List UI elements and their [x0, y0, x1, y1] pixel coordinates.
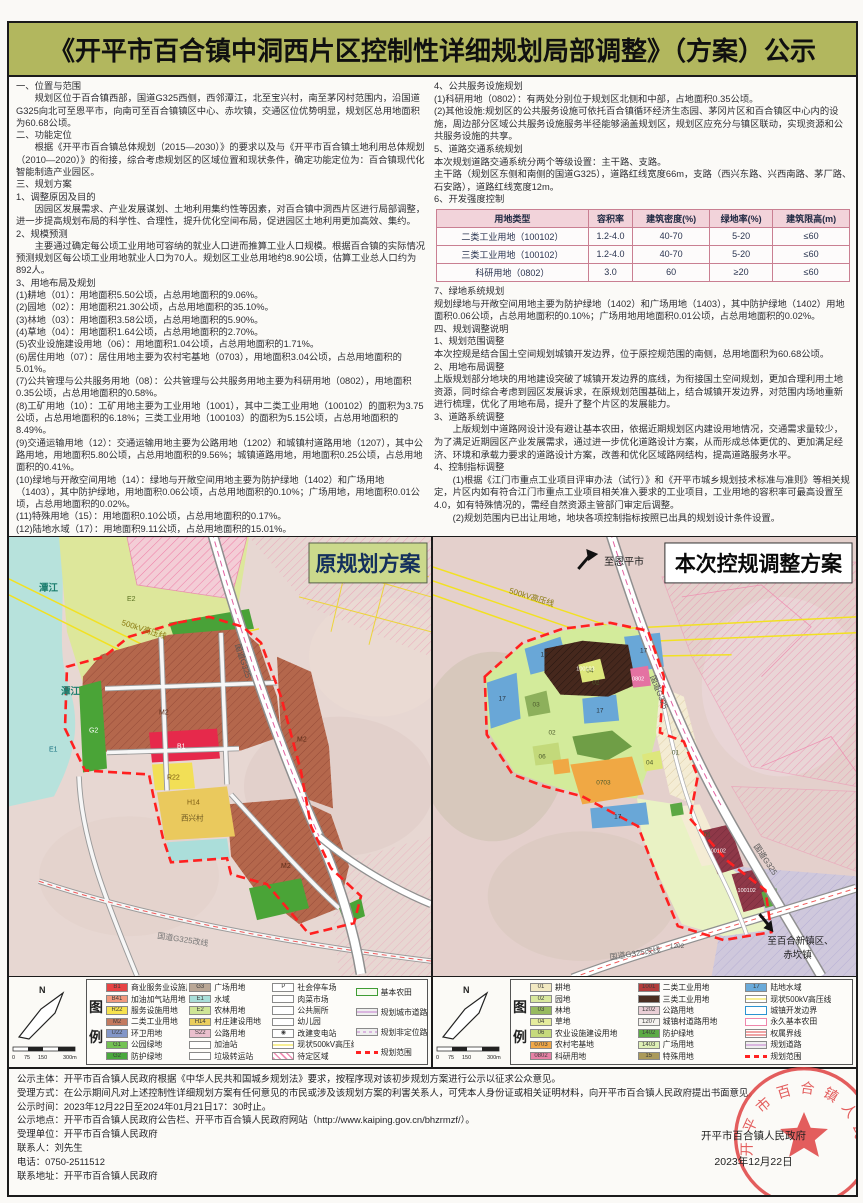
table-header-cell: 绿地率(%): [709, 209, 772, 227]
signature-block: 开平市百合镇人民政府 2023年12月22日: [701, 1123, 806, 1175]
parcel-code-e2: E2: [127, 596, 136, 603]
legend-item: 17 陆地水域: [745, 982, 851, 993]
legend-label: 幼儿园: [297, 1016, 320, 1027]
legend-item: 权属界线: [745, 1028, 851, 1039]
paragraph: (9)交通运输用地（12）：交通运输用地主要为公路用地（1202）和城镇村道路用…: [16, 437, 428, 474]
title-bar: 《开平市百合镇中洞西片区控制性详细规划局部调整》（方案）公示: [9, 23, 856, 77]
left-map-legend: N 0 75 150 300m 图例: [9, 977, 431, 1067]
legend-item: 03 林地: [530, 1005, 636, 1016]
parcel-code-b1: B1: [177, 744, 186, 751]
left-column: 一、位置与范围 规划区位于百合镇西部，国道G325西侧，西邻潭江，北至宝兴村，南…: [16, 80, 428, 534]
legend-item: 三类工业用地: [638, 994, 744, 1005]
notice-line: 受理方式：在公示期间凡对上述控制性详细规划方案有任何意见的市民或涉及该规划方案的…: [17, 1088, 848, 1098]
paragraph: 4、公共服务设施规划: [434, 80, 852, 93]
paragraph: 1、规划范围调整: [434, 335, 852, 348]
paragraph: (7)公共管理与公共服务用地（08）：公共管理与公共服务用地主要为科研用地（08…: [16, 375, 428, 400]
legend-label: 城镇村道路用地: [663, 1016, 718, 1027]
code-0703a: 0703: [596, 779, 611, 786]
cell-green-rate: 5-20: [709, 227, 772, 245]
text-columns: 一、位置与范围 规划区位于百合镇西部，国道G325西侧，西邻潭江，北至宝兴村，南…: [9, 77, 856, 536]
legend-item: 基本农田: [356, 987, 428, 998]
legend-item: 现状500kV高压线: [745, 994, 851, 1005]
svg-text:150: 150: [462, 1055, 471, 1061]
legend-swatch: 17: [745, 983, 767, 992]
legend-swatch: [356, 1028, 378, 1037]
legend-swatch: 1202: [638, 1006, 660, 1015]
legend-item: 1207 城镇村道路用地: [638, 1016, 744, 1027]
paragraph: (1)科研用地（0802）：有两处分别位于规划区北侧和中部，占地面积0.35公顷…: [434, 93, 852, 106]
legend-swatch: [272, 995, 294, 1004]
paragraph: (2)园地（02）：用地面积21.30公顷，占总用地面积的35.10%。: [16, 301, 428, 313]
paragraph: 本次规划道路交通系统分两个等级设置：主干路、支路。: [434, 156, 852, 169]
legend-item: 01 耕地: [530, 982, 636, 993]
code-100103: 100103: [576, 667, 594, 673]
cell-density: 60: [633, 263, 709, 281]
table-header-cell: 容积率: [588, 209, 633, 227]
left-north-scale: N 0 75 150 300m: [9, 977, 83, 1067]
cell-density: 40-70: [633, 227, 709, 245]
legend-label: 二类工业用地: [131, 1016, 178, 1027]
legend-item: 永久基本农田: [745, 1016, 851, 1027]
code-0802: 0802: [632, 677, 644, 683]
legend-swatch: E2: [189, 1006, 211, 1015]
legend-item: 06 农业设施建设用地: [530, 1028, 636, 1039]
legend-label: 现状500kV高压线: [297, 1039, 353, 1050]
legend-item: 肉菜市场: [272, 994, 353, 1005]
parcel-code-h14: H14: [187, 799, 200, 806]
legend-item: 加油站: [189, 1039, 270, 1050]
legend-swatch: B41: [106, 995, 128, 1004]
legend-swatch: G2: [106, 1052, 128, 1061]
notice-line: 公示时间：2023年12月22日至2024年01月21日17：30时止。: [17, 1102, 848, 1112]
paragraph: 2、用地布局调整: [434, 361, 852, 374]
legend-item: M2 二类工业用地: [106, 1016, 187, 1027]
right-column-top: 4、公共服务设施规划(1)科研用地（0802）：有两处分别位于规划区北侧和中部，…: [434, 80, 852, 206]
legend-label: 基本农田: [381, 987, 412, 998]
signature-date: 2023年12月22日: [701, 1149, 806, 1175]
code-17d: 17: [596, 708, 604, 715]
legend-item: G1 公园绿地: [106, 1039, 187, 1050]
paragraph: (5)农业设施建设用地（06）：用地面积1.04公顷，占总用地面积的1.71%。: [16, 338, 428, 350]
cell-land-type: 科研用地（0802）: [437, 263, 589, 281]
legend-swatch: H14: [189, 1018, 211, 1027]
legend-item: 城镇开发边界: [745, 1005, 851, 1016]
legend-swatch: 06: [530, 1029, 552, 1038]
legend-swatch: S22: [189, 1029, 211, 1038]
legend-label: 永久基本农田: [770, 1016, 817, 1027]
legend-swatch: ◉: [272, 1029, 294, 1038]
paragraph: 二、功能定位: [16, 129, 428, 141]
legend-caption-char: 例: [89, 1027, 103, 1047]
svg-text:150: 150: [38, 1055, 47, 1061]
right-map-legend: N 0 75 150 300m 图例: [431, 977, 856, 1067]
legend-swatch: 1403: [638, 1041, 660, 1050]
legend-item: B41 加油加气站用地: [106, 994, 187, 1005]
legend-label: 环卫用地: [131, 1028, 162, 1039]
legend-swatch: 03: [530, 1006, 552, 1015]
paragraph: 主干路（规划区东侧和南侧的国道G325），道路红线宽度66m，支路（西兴东路、兴…: [434, 168, 852, 193]
legend-item: 幼儿园: [272, 1016, 353, 1027]
legend-label: 林地: [555, 1005, 571, 1016]
scale-bar-labels: 0 75 150 300m: [436, 1055, 501, 1061]
paragraph: 3、道路系统调整: [434, 411, 852, 424]
legend-item: 1402 防护绿地: [638, 1028, 744, 1039]
paragraph: (12)陆地水域（17）：用地面积9.11公顷，占总用地面积的15.01%。: [16, 523, 428, 534]
paragraph: (10)绿地与开敞空间用地（14）：绿地与开敞空间用地主要为防护绿地（1402）…: [16, 474, 428, 511]
legend-label: 科研用地: [555, 1051, 586, 1062]
code-17e: 17: [614, 813, 622, 820]
code-17b: 17: [540, 652, 548, 659]
legend-item: 0802 科研用地: [530, 1051, 636, 1062]
legend-label: 防护绿地: [131, 1051, 162, 1062]
svg-text:75: 75: [448, 1055, 454, 1061]
paragraph: (8)工矿用地（10）：工矿用地主要为工业用地（1001），其中二类工业用地（1…: [16, 400, 428, 437]
legend-swatch: 04: [530, 1018, 552, 1027]
legend-label: 陆地水域: [770, 982, 801, 993]
legend-swatch: G1: [106, 1041, 128, 1050]
legend-swatch: M2: [106, 1018, 128, 1027]
legend-label: 垃圾转运站: [214, 1051, 253, 1062]
legend-item: G3 广场用地: [189, 982, 270, 993]
legend-label: 加油站: [214, 1039, 237, 1050]
map-section: 潭江 潭江 500kV高压线 国道G325 国道G325改线 西兴村 M2 M2…: [9, 536, 856, 976]
code-100102b: 100102: [738, 888, 756, 894]
right-legend-box: 图例 01 耕地 02 园地 03 林地: [510, 979, 853, 1065]
parcel-code-m2b: M2: [297, 737, 307, 744]
legend-item: P 社会停车场: [272, 982, 353, 993]
north-arrow-icon: [19, 993, 63, 1039]
legend-swatch: [356, 1048, 378, 1057]
svg-text:300m: 300m: [487, 1055, 501, 1061]
paragraph: 三、规划方案: [16, 178, 428, 190]
legend-swatch: P: [272, 983, 294, 992]
legend-item: 02 园地: [530, 994, 636, 1005]
legend-swatch: [745, 1041, 767, 1050]
north-label: N: [39, 985, 46, 995]
code-02b: 02: [592, 680, 600, 687]
legend-label: 规划范围: [381, 1047, 412, 1058]
legend-item: S22 公路用地: [189, 1028, 270, 1039]
legend-label: 加油加气站用地: [131, 994, 186, 1005]
legend-label: 耕地: [555, 982, 571, 993]
legend-label: 特殊用地: [663, 1051, 694, 1062]
legend-label: 二类工业用地: [663, 982, 710, 993]
legend-item: R22 服务设施用地: [106, 1005, 187, 1016]
parcel-code-e1: E1: [49, 747, 58, 754]
legend-swatch: [272, 1041, 294, 1050]
legend-label: 农业设施建设用地: [555, 1028, 617, 1039]
legend-swatch: 1207: [638, 1018, 660, 1027]
legend-swatch: 0802: [530, 1052, 552, 1061]
parcel-code-m2: M2: [159, 710, 169, 717]
legend-swatch: [745, 1052, 767, 1061]
legend-label: 广场用地: [663, 1039, 694, 1050]
legend-swatch: E1: [189, 995, 211, 1004]
legend-label: 水域: [214, 994, 230, 1005]
legend-swatch: [745, 1006, 767, 1015]
legend-label: 公路用地: [663, 1005, 694, 1016]
legend-section: N 0 75 150 300m 图例: [9, 976, 856, 1069]
legend-label: 商业服务业设施用地: [131, 982, 187, 993]
legend-label: 防护绿地: [663, 1028, 694, 1039]
legend-item: E2 农林用地: [189, 1005, 270, 1016]
code-06: 06: [539, 753, 547, 760]
svg-text:0: 0: [436, 1055, 439, 1061]
code-100102a: 100102: [708, 848, 726, 854]
legend-caption: 图例: [511, 980, 529, 1064]
cell-density: 40-70: [633, 245, 709, 263]
svg-text:75: 75: [24, 1055, 30, 1061]
table-row: 科研用地（0802） 3.0 60 ≥20 ≤60: [437, 263, 850, 281]
cell-far: 1.2-4.0: [588, 245, 633, 263]
north-label: N: [463, 985, 470, 995]
original-plan-map-panel: 潭江 潭江 500kV高压线 国道G325 国道G325改线 西兴村 M2 M2…: [9, 537, 431, 976]
cell-green-rate: ≥20: [709, 263, 772, 281]
legend-label: 园地: [555, 994, 571, 1005]
right-north-scale: N 0 75 150 300m: [433, 977, 507, 1067]
map-label-village: 西兴村: [181, 812, 204, 822]
original-plan-map: 潭江 潭江 500kV高压线 国道G325 国道G325改线 西兴村 M2 M2…: [9, 537, 431, 976]
legend-label: 广场用地: [214, 982, 245, 993]
paragraph: (3)林地（03）：用地面积3.58公顷，占总用地面积的5.90%。: [16, 314, 428, 326]
legend-caption: 图例: [87, 980, 105, 1064]
page-title: 《开平市百合镇中洞西片区控制性详细规划局部调整》（方案）公示: [49, 31, 816, 68]
paragraph: (2)其他设施:规划区的公共服务设施可依托百合镇循环经济生态园、茅冈片区和百合镇…: [434, 105, 852, 143]
legend-swatch: [272, 1006, 294, 1015]
code-17a: 17: [499, 696, 507, 703]
parcel-code-r22: R22: [167, 774, 180, 781]
legend-swatch: 1001: [638, 983, 660, 992]
parcel-code-m2c: M2: [281, 863, 291, 870]
legend-caption-char: 图: [513, 997, 527, 1017]
right-column-bottom: 7、绿地系统规划规划绿地与开敞空间用地主要为防护绿地（1402）和广场用地（14…: [434, 285, 852, 524]
legend-swatch: U22: [106, 1029, 128, 1038]
table-header-cell: 用地类型: [437, 209, 589, 227]
table-header-cell: 建筑密度(%): [633, 209, 709, 227]
paragraph: 4、控制指标调整: [434, 461, 852, 474]
legend-item: 1001 二类工业用地: [638, 982, 744, 993]
paragraph: (4)草地（04）：用地面积1.64公顷，占总用地面积的2.70%。: [16, 326, 428, 338]
legend-label: 公共厕所: [297, 1005, 328, 1016]
legend-swatch: [745, 995, 767, 1004]
legend-label: 村庄建设用地: [214, 1016, 261, 1027]
cell-height-limit: ≤60: [773, 227, 850, 245]
table-header-cell: 建筑限高(m): [773, 209, 850, 227]
legend-label: 城镇开发边界: [770, 1005, 817, 1016]
legend-swatch: 15: [638, 1052, 660, 1061]
legend-item: 规划范围: [356, 1047, 428, 1058]
legend-label: 公园绿地: [131, 1039, 162, 1050]
legend-item: E1 水域: [189, 994, 270, 1005]
cell-land-type: 三类工业用地（100102）: [437, 245, 589, 263]
code-17c: 17: [640, 648, 648, 655]
legend-label: 权属界线: [770, 1028, 801, 1039]
map-label-chikan: 赤坎镇: [783, 949, 812, 961]
legend-item: 待定区域: [272, 1051, 353, 1062]
right-map-title: 本次控规调整方案: [675, 552, 843, 576]
legend-item: ◉ 改建变电站: [272, 1028, 353, 1039]
legend-item: U22 环卫用地: [106, 1028, 187, 1039]
development-intensity-table: 用地类型容积率建筑密度(%)绿地率(%)建筑限高(m) 二类工业用地（10010…: [436, 209, 850, 282]
legend-item: 垃圾转运站: [189, 1051, 270, 1062]
paragraph: 规划绿地与开敞空间用地主要为防护绿地（1402）和广场用地（1403），其中防护…: [434, 298, 852, 323]
map-label-to-baihe: 至百合新镇区、: [767, 935, 833, 947]
legend-label: 规划城市道路: [381, 1007, 428, 1018]
paragraph: 四、规划调整说明: [434, 323, 852, 336]
legend-label: 农村宅基地: [555, 1039, 594, 1050]
legend-swatch: [189, 1052, 211, 1061]
cell-height-limit: ≤60: [773, 245, 850, 263]
svg-text:0: 0: [12, 1055, 15, 1061]
legend-swatch: [272, 1052, 294, 1061]
code-04b: 04: [646, 759, 654, 766]
legend-swatch: 0703: [530, 1041, 552, 1050]
signature-org: 开平市百合镇人民政府: [701, 1123, 806, 1149]
legend-item: G2 防护绿地: [106, 1051, 187, 1062]
legend-item: B1 商业服务业设施用地: [106, 982, 187, 993]
north-arrow-icon: [443, 993, 487, 1039]
cell-height-limit: ≤60: [773, 263, 850, 281]
legend-swatch: [745, 1018, 767, 1027]
legend-swatch: B1: [106, 983, 128, 992]
adjusted-plan-map: 至恩平市 500kV高压线 国道G325 国道G325 国道G325改线 至百合…: [433, 537, 856, 976]
left-legend-box: 图例 B1 商业服务业设施用地 B41 加油加气站用地 R22: [86, 979, 428, 1065]
paragraph: 根据《开平市百合镇总体规划（2015—2030）》的要求以及与《开平市百合镇土地…: [16, 141, 428, 178]
legend-item: 规划非定位路: [356, 1027, 428, 1038]
table-row: 三类工业用地（100102） 1.2-4.0 40-70 5-20 ≤60: [437, 245, 850, 263]
paragraph: 一、位置与范围: [16, 80, 428, 92]
code-01b: 01: [704, 831, 712, 838]
legend-swatch: [638, 995, 660, 1004]
legend-label: 规划范围: [770, 1051, 801, 1062]
legend-item: 1202 公路用地: [638, 1005, 744, 1016]
code-03: 03: [533, 702, 541, 709]
legend-label: 草地: [555, 1016, 571, 1027]
adjusted-plan-map-panel: 至恩平市 500kV高压线 国道G325 国道G325 国道G325改线 至百合…: [431, 537, 856, 976]
paragraph: (2)规划范围内已出让用地，地块各项控制指标按照已出具的规划设计条件设置。: [434, 512, 852, 525]
legend-label: 公路用地: [214, 1028, 245, 1039]
legend-label: 改建变电站: [297, 1028, 336, 1039]
legend-item: 规划城市道路: [356, 1007, 428, 1018]
legend-label: 现状500kV高压线: [770, 994, 831, 1005]
table-header-row: 用地类型容积率建筑密度(%)绿地率(%)建筑限高(m): [437, 209, 850, 227]
legend-label: 肉菜市场: [297, 994, 328, 1005]
legend-swatch: [272, 1018, 294, 1027]
paragraph: 3、用地布局及规划: [16, 277, 428, 289]
paragraph: (6)居住用地（07）：居住用地主要为农村宅基地（0703），用地面积3.04公…: [16, 351, 428, 376]
legend-item: 15 特殊用地: [638, 1051, 744, 1062]
map-label-to-enping: 至恩平市: [604, 555, 644, 568]
legend-label: 待定区域: [297, 1051, 328, 1062]
legend-swatch: 1402: [638, 1029, 660, 1038]
legend-swatch: [189, 1041, 211, 1050]
paragraph: 上版规划部分地块的用地建设突破了城镇开发边界的底线，为衔接国土空间规划，更加合理…: [434, 373, 852, 411]
legend-caption-char: 例: [513, 1027, 527, 1047]
legend-item: 规划范围: [745, 1051, 851, 1062]
paragraph: 7、绿地系统规划: [434, 285, 852, 298]
legend-swatch: 01: [530, 983, 552, 992]
paragraph: 上版规划中道路网设计没有避让基本农田，依据近期规划区内建设用地情况，交通需求量较…: [434, 423, 852, 461]
paragraph: 本次控规是结合国土空间规划城镇开发边界，位于原控规范围的南侧，总用地面积为60.…: [434, 348, 852, 361]
legend-item: 0703 农村宅基地: [530, 1039, 636, 1050]
legend-label: 农林用地: [214, 1005, 245, 1016]
cell-far: 1.2-4.0: [588, 227, 633, 245]
legend-label: 规划非定位路: [381, 1027, 428, 1038]
legend-swatch: 02: [530, 995, 552, 1004]
legend-swatch: [745, 1029, 767, 1038]
cell-far: 3.0: [588, 263, 633, 281]
paragraph: (1)根据《江门市重点工业项目评审办法（试行）》和《开平市城乡规划技术标准与准则…: [434, 474, 852, 512]
legend-item: 规划道路: [745, 1039, 851, 1050]
parcel-code-g2: G2: [89, 728, 98, 735]
cell-land-type: 二类工业用地（100102）: [437, 227, 589, 245]
paragraph: 规划区位于百合镇西部，国道G325西侧，西邻潭江，北至宝兴村，南至茅冈村范围内，…: [16, 92, 428, 129]
paragraph: 因园区发展需求、产业发展谋划、土地利用集约性等因素，对百合镇中洞西片区进行局部调…: [16, 203, 428, 228]
legend-label: 社会停车场: [297, 982, 336, 993]
legend-label: 规划道路: [770, 1039, 801, 1050]
right-column: 4、公共服务设施规划(1)科研用地（0802）：有两处分别位于规划区北侧和中部，…: [434, 80, 852, 534]
page-frame: 《开平市百合镇中洞西片区控制性详细规划局部调整》（方案）公示 一、位置与范围 规…: [7, 21, 858, 1197]
map-label-tanjiang-2: 潭江: [61, 686, 80, 698]
legend-swatch: G3: [189, 983, 211, 992]
paragraph: 1、调整原因及目的: [16, 191, 428, 203]
public-notice-document: 《开平市百合镇中洞西片区控制性详细规划局部调整》（方案）公示 一、位置与范围 规…: [0, 0, 863, 1203]
paragraph: 主要通过确定每公顷工业用地可容纳的就业人口进而推算工业人口规模。根据百合镇的实际…: [16, 240, 428, 277]
legend-swatch: R22: [106, 1006, 128, 1015]
table-row: 二类工业用地（100102） 1.2-4.0 40-70 5-20 ≤60: [437, 227, 850, 245]
svg-text:300m: 300m: [63, 1055, 77, 1061]
code-1202: 1202: [670, 943, 685, 950]
legend-item: 1403 广场用地: [638, 1039, 744, 1050]
legend-label: 服务设施用地: [131, 1005, 178, 1016]
paragraph: (1)耕地（01）：用地面积5.50公顷，占总用地面积的9.06%。: [16, 289, 428, 301]
left-map-title: 原规划方案: [316, 552, 422, 576]
legend-item: 现状500kV高压线: [272, 1039, 353, 1050]
code-01a: 01: [672, 749, 680, 756]
notice-line: 公示主体：开平市百合镇人民政府根据《中华人民共和国城乡规划法》要求，按程序现对该…: [17, 1074, 848, 1084]
cell-green-rate: 5-20: [709, 245, 772, 263]
legend-swatch: [356, 988, 378, 997]
legend-swatch: [356, 1008, 378, 1017]
paragraph: 2、规模预测: [16, 228, 428, 240]
scale-bar-labels: 0 75 150 300m: [12, 1055, 77, 1061]
legend-item: 公共厕所: [272, 1005, 353, 1016]
legend-item: 04 草地: [530, 1016, 636, 1027]
map-label-tanjiang: 潭江: [39, 582, 58, 594]
paragraph: 6、开发强度控制: [434, 193, 852, 206]
legend-label: 三类工业用地: [663, 994, 710, 1005]
legend-caption-char: 图: [89, 997, 103, 1017]
paragraph: (11)特殊用地（15）：用地面积0.10公顷，占总用地面积的0.17%。: [16, 510, 428, 522]
legend-item: H14 村庄建设用地: [189, 1016, 270, 1027]
paragraph: 5、道路交通系统规划: [434, 143, 852, 156]
code-02a: 02: [548, 730, 556, 737]
